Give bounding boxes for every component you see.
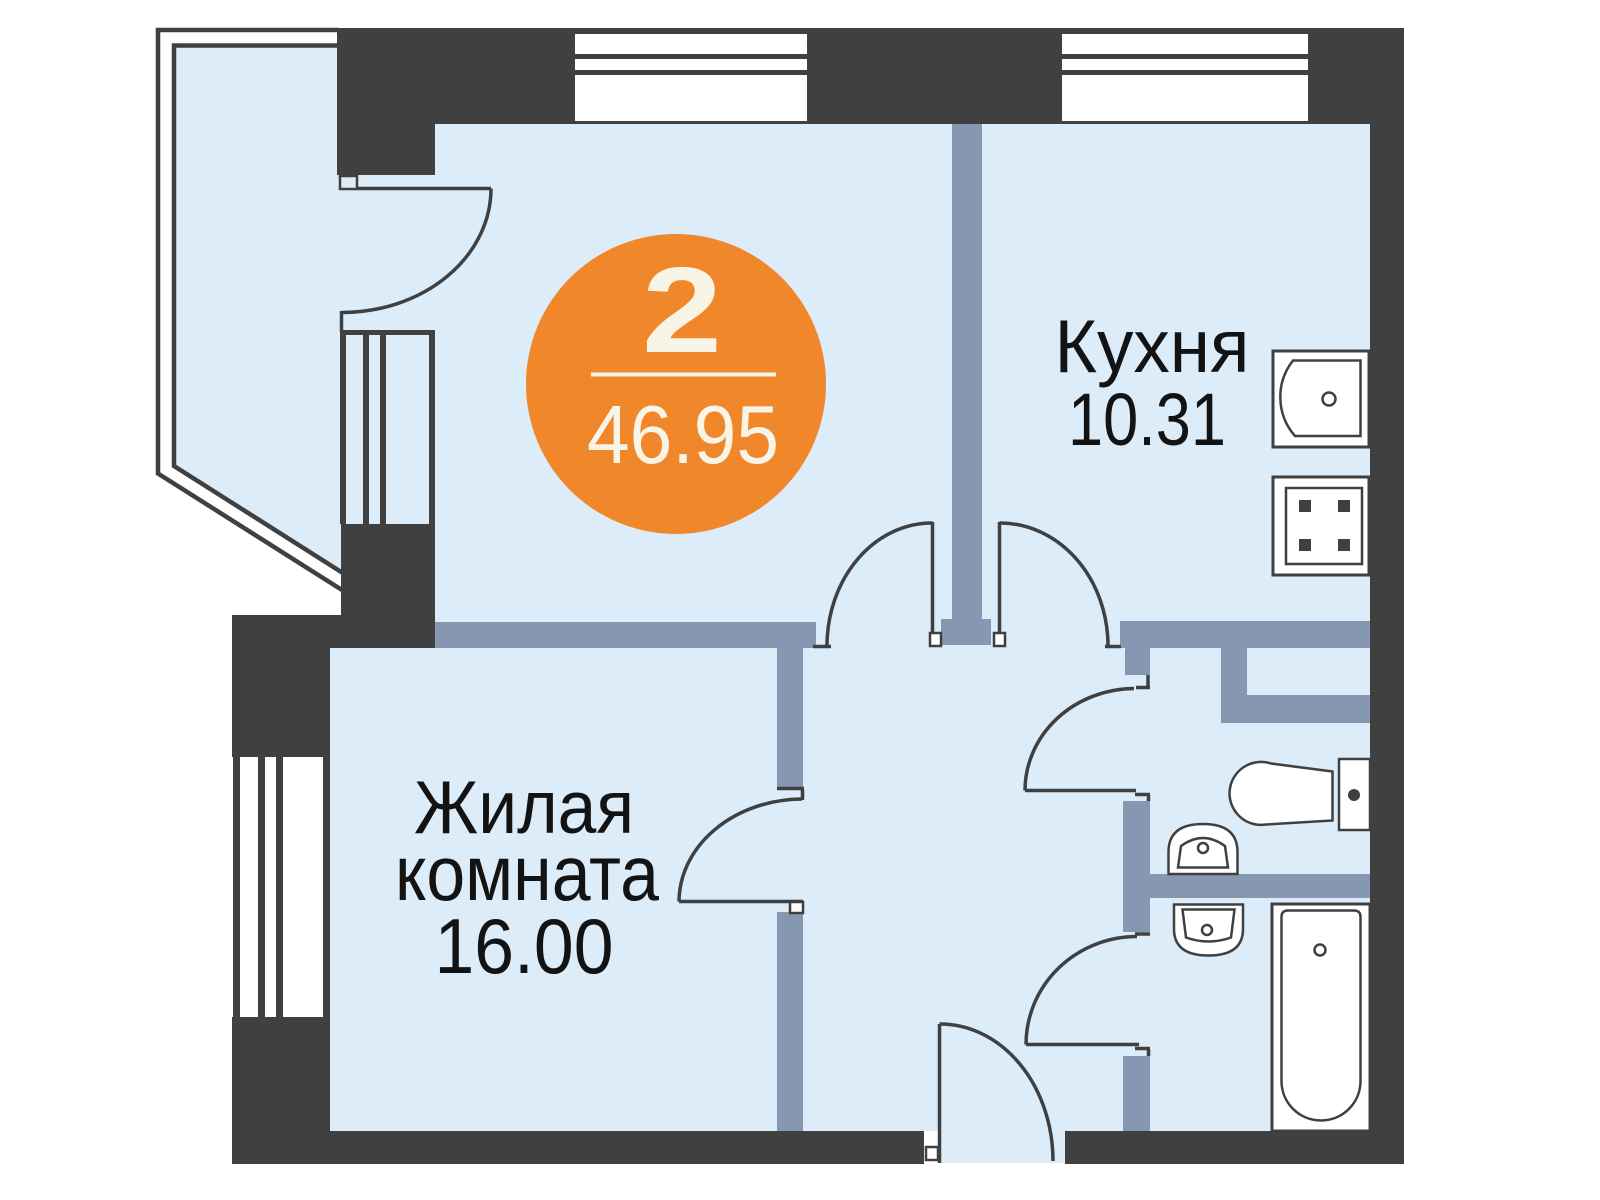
svg-text:16.00: 16.00 [435,902,614,990]
svg-text:Кухня: Кухня [1055,304,1250,388]
svg-text:46.95: 46.95 [587,388,779,481]
svg-text:10.31: 10.31 [1068,378,1226,461]
svg-text:2: 2 [642,242,722,378]
